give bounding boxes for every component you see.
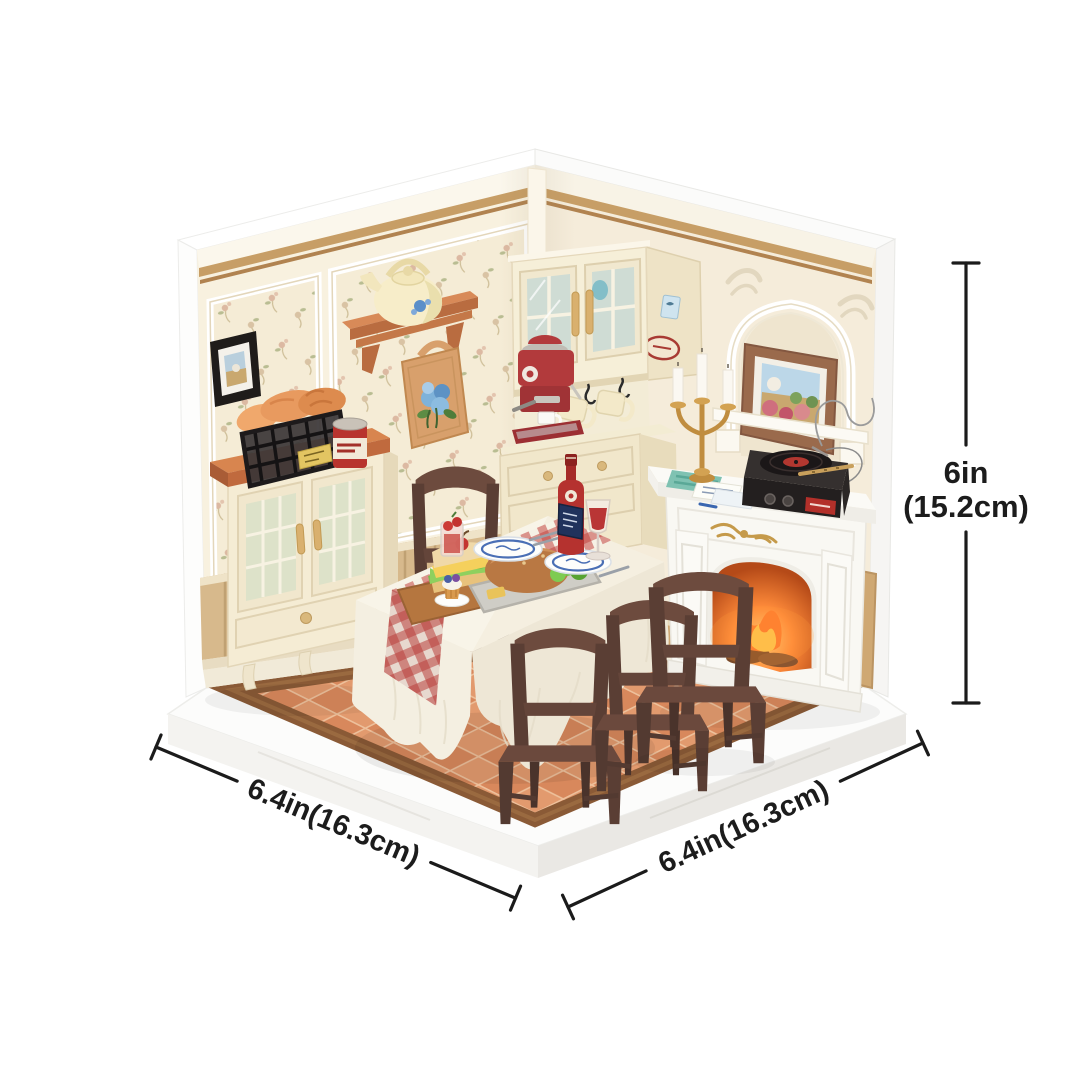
height-dimension: 6in (15.2cm) <box>903 263 1029 703</box>
tote-bag <box>402 344 468 448</box>
product-image: 6in (15.2cm) 6.4in(16.3cm) 6.4in(16.3cm) <box>0 0 1080 1080</box>
wall-art-frame <box>210 331 261 407</box>
dollhouse-scene: 6in (15.2cm) 6.4in(16.3cm) 6.4in(16.3cm) <box>0 0 1080 1080</box>
height-label-metric: (15.2cm) <box>903 489 1029 524</box>
coffee-tin <box>333 418 367 468</box>
height-label-value: 6in <box>944 455 989 490</box>
